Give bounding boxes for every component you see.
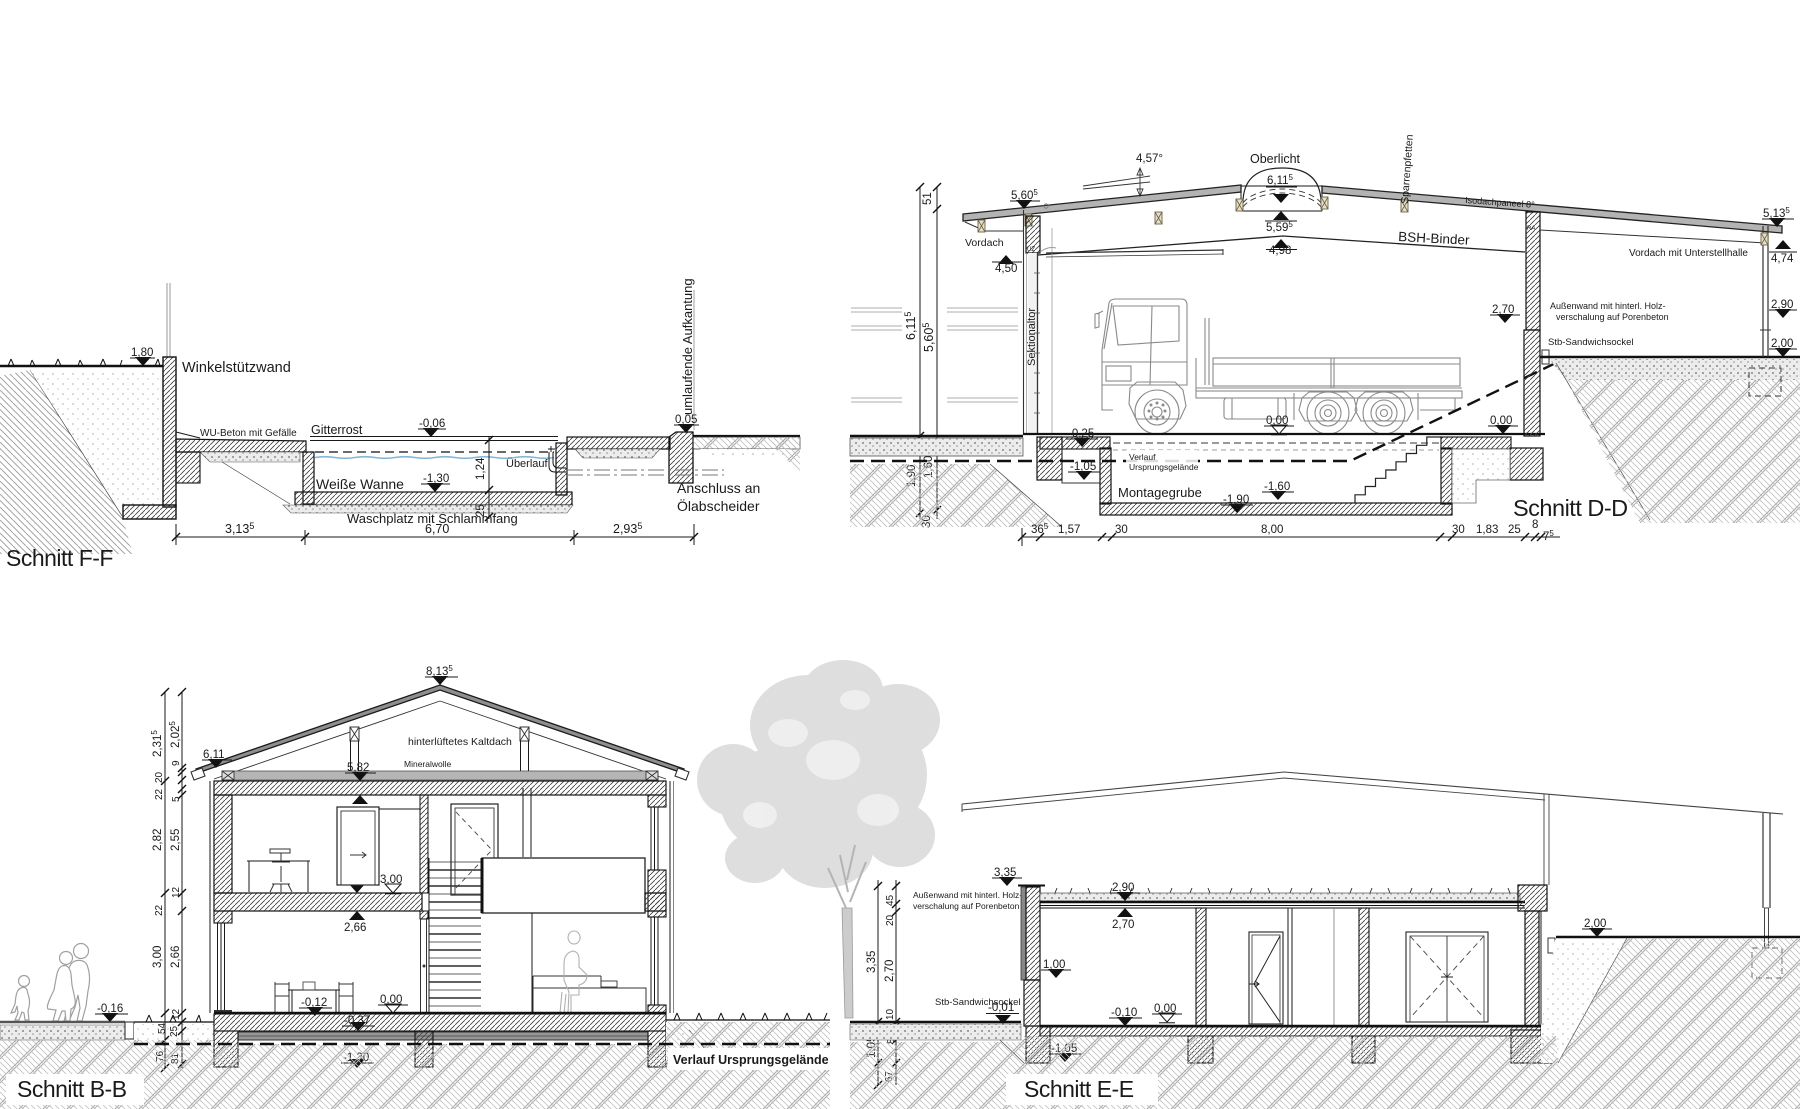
svg-text:0,00: 0,00 xyxy=(380,994,402,1006)
svg-text:Winkelstützwand: Winkelstützwand xyxy=(182,360,291,376)
svg-text:5: 5 xyxy=(171,796,182,802)
svg-text:Ursprungsgelände: Ursprungsgelände xyxy=(1129,462,1199,472)
svg-text:3,00: 3,00 xyxy=(152,946,164,968)
svg-text:4,50: 4,50 xyxy=(995,263,1017,275)
svg-text:umlaufende Aufkantung: umlaufende Aufkantung xyxy=(680,278,695,415)
svg-text:2,70: 2,70 xyxy=(1492,304,1514,316)
svg-text:1,80: 1,80 xyxy=(131,347,153,359)
svg-text:22: 22 xyxy=(154,904,165,916)
svg-text:Gitterrost: Gitterrost xyxy=(311,423,363,437)
svg-text:hinterlüftetes Kaltdach: hinterlüftetes Kaltdach xyxy=(408,736,512,748)
svg-text:0,00: 0,00 xyxy=(1266,415,1288,427)
svg-text:2,66: 2,66 xyxy=(170,946,182,968)
svg-text:1,24: 1,24 xyxy=(475,457,487,480)
svg-text:22: 22 xyxy=(154,788,165,800)
svg-text:9: 9 xyxy=(171,760,182,766)
svg-text:2,66: 2,66 xyxy=(344,922,366,934)
svg-text:30: 30 xyxy=(1452,524,1465,536)
svg-text:5,82: 5,82 xyxy=(347,762,369,774)
svg-text:Verlauf Ursprungsgelände: Verlauf Ursprungsgelände xyxy=(673,1053,829,1067)
svg-text:0,00: 0,00 xyxy=(1154,1003,1176,1015)
svg-text:45: 45 xyxy=(885,894,896,906)
svg-text:3,35: 3,35 xyxy=(994,867,1016,879)
svg-text:1,83: 1,83 xyxy=(1476,524,1498,536)
svg-text:-1,05: -1,05 xyxy=(1070,461,1096,473)
svg-text:6,11: 6,11 xyxy=(203,749,225,761)
svg-text:30: 30 xyxy=(1115,524,1128,536)
svg-text:-1,30: -1,30 xyxy=(423,473,449,485)
svg-text:2,90: 2,90 xyxy=(1112,882,1134,894)
svg-text:Schnitt D-D: Schnitt D-D xyxy=(1513,495,1628,521)
svg-text:verschalung auf Porenbeton: verschalung auf Porenbeton xyxy=(913,901,1020,911)
svg-text:-0,06: -0,06 xyxy=(419,418,445,430)
svg-text:Außenwand mit hinterl. Holz-: Außenwand mit hinterl. Holz- xyxy=(913,890,1022,900)
svg-text:Oberlicht: Oberlicht xyxy=(1250,152,1301,166)
svg-text:verschalung auf Porenbeton: verschalung auf Porenbeton xyxy=(1556,312,1669,322)
svg-text:Stb-Sandwichsockel: Stb-Sandwichsockel xyxy=(1548,337,1634,348)
svg-text:Anschluss an: Anschluss an xyxy=(677,480,760,496)
svg-text:Vordach mit Unterstellhalle: Vordach mit Unterstellhalle xyxy=(1629,248,1748,259)
svg-text:3,35: 3,35 xyxy=(866,951,878,973)
svg-text:Verlauf: Verlauf xyxy=(1129,452,1156,462)
svg-text:2,70: 2,70 xyxy=(884,960,896,982)
svg-text:Schnitt B-B: Schnitt B-B xyxy=(17,1076,127,1102)
svg-text:2,55: 2,55 xyxy=(170,829,182,851)
svg-text:51: 51 xyxy=(922,192,934,205)
svg-text:-0,16: -0,16 xyxy=(97,1003,123,1015)
svg-text:-0,25: -0,25 xyxy=(1068,428,1094,440)
svg-text:UZ: UZ xyxy=(1027,247,1035,253)
svg-text:4,74: 4,74 xyxy=(1771,253,1794,265)
svg-text:10: 10 xyxy=(885,1008,896,1020)
svg-text:Sektionaltor: Sektionaltor xyxy=(1026,308,1038,366)
svg-text:Außenwand mit hinterl. Holz-: Außenwand mit hinterl. Holz- xyxy=(1550,301,1666,311)
svg-text:2,90: 2,90 xyxy=(1771,299,1793,311)
svg-text:-0,37: -0,37 xyxy=(344,1015,370,1027)
svg-text:12: 12 xyxy=(171,1008,182,1020)
svg-text:2,70: 2,70 xyxy=(1112,919,1134,931)
svg-text:8,00: 8,00 xyxy=(1261,524,1283,536)
svg-text:Vordach: Vordach xyxy=(965,237,1004,249)
svg-text:Weiße Wanne: Weiße Wanne xyxy=(316,476,404,492)
svg-text:20: 20 xyxy=(154,771,165,783)
svg-text:Überlauf: Überlauf xyxy=(506,458,549,470)
svg-text:Schnitt E-E: Schnitt E-E xyxy=(1024,1076,1134,1102)
svg-text:Schnitt F-F: Schnitt F-F xyxy=(6,545,113,571)
svg-text:4,98: 4,98 xyxy=(1269,245,1291,257)
svg-text:1,57: 1,57 xyxy=(1058,524,1080,536)
svg-text:-1,60: -1,60 xyxy=(1264,481,1290,493)
svg-text:6,70: 6,70 xyxy=(425,522,449,536)
svg-text:-0,12: -0,12 xyxy=(301,997,327,1009)
svg-text:WU-Beton mit Gefälle: WU-Beton mit Gefälle xyxy=(200,428,297,439)
svg-text:54: 54 xyxy=(157,1022,168,1034)
svg-text:25: 25 xyxy=(1508,524,1521,536)
svg-text:Montagegrube: Montagegrube xyxy=(1118,485,1202,500)
svg-text:4,57°: 4,57° xyxy=(1136,153,1163,165)
svg-text:2,00: 2,00 xyxy=(1584,918,1606,930)
svg-text:-1,90: -1,90 xyxy=(1223,494,1249,506)
svg-text:-0,01: -0,01 xyxy=(988,1002,1014,1014)
svg-text:-0,10: -0,10 xyxy=(1111,1007,1137,1019)
svg-text:RA: RA xyxy=(1527,226,1535,232)
svg-text:3,00: 3,00 xyxy=(380,874,402,886)
svg-text:2,00: 2,00 xyxy=(1771,338,1793,350)
svg-text:2,82: 2,82 xyxy=(152,829,164,851)
svg-text:12: 12 xyxy=(171,886,182,898)
svg-text:Mineralwolle: Mineralwolle xyxy=(404,759,452,769)
svg-text:20: 20 xyxy=(885,914,896,926)
svg-text:0,05: 0,05 xyxy=(675,414,697,426)
svg-text:Ölabscheider: Ölabscheider xyxy=(677,497,760,514)
svg-text:1,00: 1,00 xyxy=(1043,959,1065,971)
svg-text:0,00: 0,00 xyxy=(1490,415,1512,427)
svg-text:25: 25 xyxy=(169,1025,180,1037)
